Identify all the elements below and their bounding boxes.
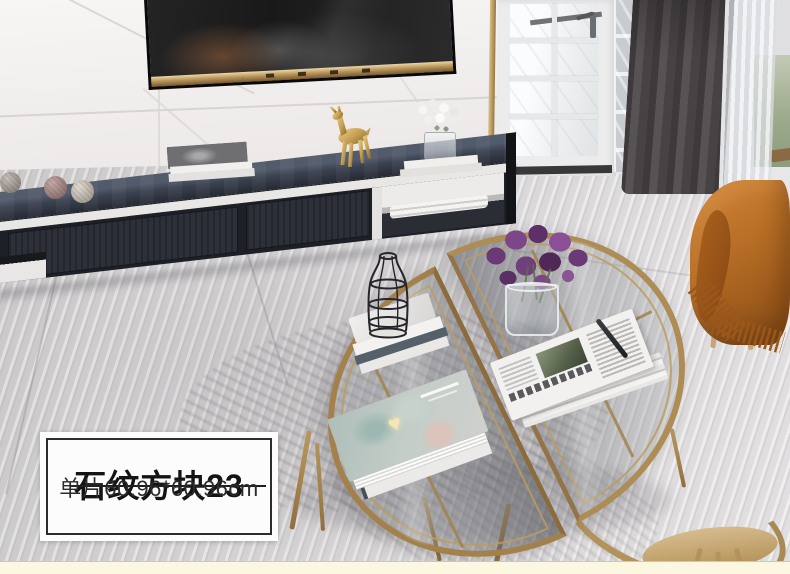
vase-rim [507,282,557,292]
sheer-curtain [719,0,778,190]
console-book-stack [167,141,258,189]
product-label: 石纹方块23 单片60.96*60.96cm [40,432,278,541]
console-divider [372,187,382,240]
console-end-panel [506,132,516,224]
label-content: 石纹方块23 单片60.96*60.96cm [48,440,270,533]
rattan-ball [71,180,94,203]
door-muntin [510,76,598,81]
console-open-end [0,252,46,283]
rattan-ball [44,176,67,199]
glass-vase [505,284,559,336]
door-glass [510,4,598,156]
page-bottom-strip [0,561,790,574]
garden-bench [769,147,790,162]
gold-deer-figurine [322,106,380,174]
dark-curtain [621,0,735,194]
product-size: 单片60.96*60.96cm [59,471,259,503]
rattan-ball [0,172,21,193]
door-muntin [510,38,598,43]
heart-icon: ♥ [385,411,405,436]
wire-lantern [362,246,414,344]
rolled-magazines [390,195,488,219]
door-muntin [510,114,598,119]
living-room-product-photo: ♥ 石纹方块23 单片60.96*60.96cm [0,0,790,574]
